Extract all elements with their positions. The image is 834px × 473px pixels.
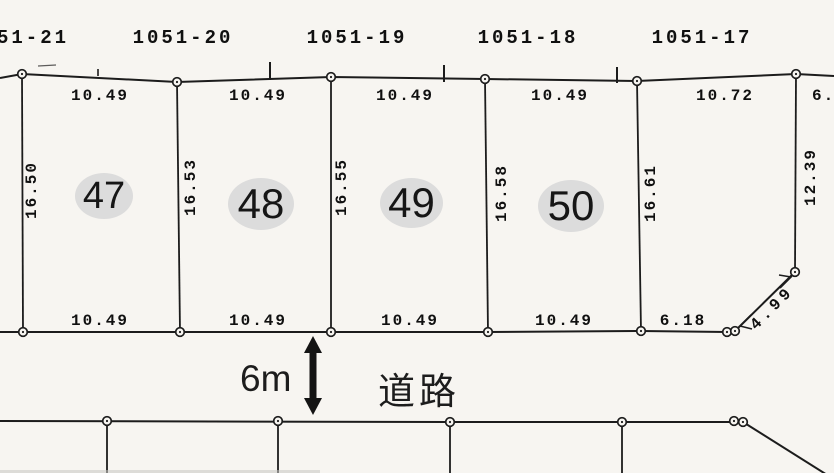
road-width-arrow	[304, 336, 322, 415]
plot-48-top-dim: 10.49	[213, 87, 303, 105]
plot-48-left-dim: 16.53	[182, 152, 202, 222]
plot-48-number-badge: 48	[228, 178, 294, 230]
plot-49-number: 49	[388, 179, 435, 227]
corner-lot-left-dim: 16.61	[642, 158, 662, 228]
lower-block-diagonal-line	[743, 422, 832, 473]
cadastral-survey-map: 51-21 1051-20 1051-19 1051-18 1051-17 10…	[0, 0, 834, 473]
road-width-label: 6m	[240, 358, 291, 400]
plot-50-bottom-dim: 10.49	[519, 312, 609, 330]
plot-47-number-badge: 47	[75, 173, 133, 219]
plot-48-left-line	[177, 82, 180, 332]
plot-48-number: 48	[238, 180, 285, 228]
plot-50-left-line	[485, 79, 488, 332]
scan-artifact	[38, 65, 56, 66]
plot-50-number: 50	[548, 182, 595, 230]
upper-lot-label-1051-18: 1051-18	[463, 27, 593, 49]
plot-47-left-dim: 16.50	[23, 155, 43, 225]
corner-lot-right-dim: 12.39	[802, 142, 822, 212]
plot-49-left-dim: 16.55	[333, 152, 353, 222]
upper-lot-label-1051-21: 51-21	[0, 27, 98, 49]
top-boundary-line	[0, 74, 834, 82]
corner-lot-right-line	[795, 74, 796, 272]
bottom-boundary-line	[0, 331, 735, 332]
plot-48-bottom-dim: 10.49	[213, 312, 303, 330]
plot-49-top-dim: 10.49	[360, 87, 450, 105]
plot-49-number-badge: 49	[380, 178, 443, 228]
upper-lot-label-1051-20: 1051-20	[118, 27, 248, 49]
plot-50-left-dim: 16.58	[493, 158, 513, 228]
plot-50-top-dim: 10.49	[515, 87, 605, 105]
road-name-label: 道路	[378, 361, 460, 415]
corner-lot-bottom-dim: 6.18	[638, 312, 728, 330]
upper-lot-label-1051-19: 1051-19	[292, 27, 422, 49]
plot-47-bottom-dim: 10.49	[55, 312, 145, 330]
plot-47-number: 47	[83, 175, 125, 218]
corner-lot-top-dim: 10.72	[680, 87, 770, 105]
plot-49-bottom-dim: 10.49	[365, 312, 455, 330]
edge-partial-dim: 6.	[812, 87, 834, 105]
plot-47-top-dim: 10.49	[55, 87, 145, 105]
plot-50-number-badge: 50	[538, 180, 604, 232]
upper-lot-label-1051-17: 1051-17	[637, 27, 767, 49]
corner-lot-left-line	[637, 81, 641, 331]
